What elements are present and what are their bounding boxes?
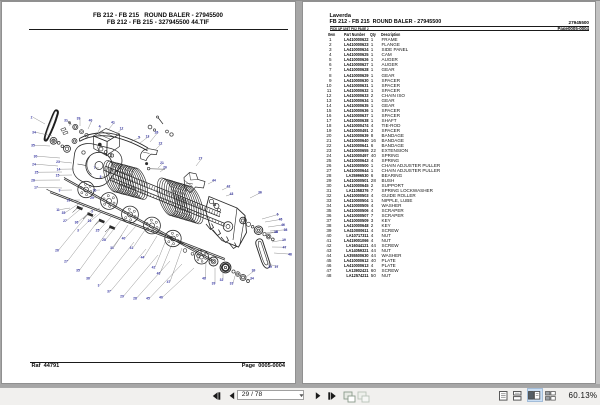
svg-text:15: 15 — [56, 174, 60, 178]
svg-text:12: 12 — [120, 127, 124, 131]
svg-text:35: 35 — [31, 144, 35, 148]
svg-text:36: 36 — [75, 221, 79, 225]
svg-text:26: 26 — [155, 131, 159, 135]
svg-text:42: 42 — [152, 266, 156, 270]
svg-text:40: 40 — [122, 237, 126, 241]
svg-text:16: 16 — [93, 189, 97, 193]
svg-text:36: 36 — [258, 191, 262, 195]
svg-text:19: 19 — [282, 238, 286, 242]
svg-text:28: 28 — [133, 297, 137, 301]
svg-text:22: 22 — [159, 142, 163, 146]
svg-text:26: 26 — [55, 249, 59, 253]
svg-text:24: 24 — [88, 219, 92, 223]
svg-text:41: 41 — [111, 121, 115, 125]
svg-text:45: 45 — [146, 297, 150, 301]
svg-text:10: 10 — [67, 199, 71, 203]
svg-text:32: 32 — [220, 278, 224, 282]
svg-text:35: 35 — [62, 211, 66, 215]
svg-text:46: 46 — [159, 296, 163, 300]
svg-text:37: 37 — [107, 290, 111, 294]
svg-text:18: 18 — [274, 230, 278, 234]
svg-text:31: 31 — [110, 246, 114, 250]
svg-text:29: 29 — [90, 196, 94, 200]
svg-text:7: 7 — [94, 166, 96, 170]
svg-text:43: 43 — [230, 192, 234, 196]
svg-text:24: 24 — [32, 163, 36, 167]
svg-text:21: 21 — [160, 161, 164, 165]
svg-text:38: 38 — [284, 228, 288, 232]
svg-text:37: 37 — [275, 265, 279, 269]
svg-text:4: 4 — [99, 125, 101, 129]
svg-text:25: 25 — [35, 171, 39, 175]
svg-text:48: 48 — [288, 253, 292, 257]
svg-text:3: 3 — [98, 284, 100, 288]
svg-text:34: 34 — [250, 277, 254, 281]
svg-text:27: 27 — [199, 157, 203, 161]
svg-text:17: 17 — [34, 186, 38, 190]
svg-text:33: 33 — [230, 282, 234, 286]
svg-text:47: 47 — [283, 246, 287, 250]
svg-text:42: 42 — [227, 185, 231, 189]
svg-text:3: 3 — [77, 229, 79, 233]
svg-text:41: 41 — [130, 246, 134, 250]
svg-text:6: 6 — [277, 213, 279, 217]
svg-text:40: 40 — [89, 119, 93, 123]
svg-text:39: 39 — [77, 117, 81, 121]
svg-text:34: 34 — [32, 131, 36, 135]
svg-text:46: 46 — [281, 223, 285, 227]
svg-text:43: 43 — [157, 272, 161, 276]
svg-text:48: 48 — [202, 277, 206, 281]
svg-text:27: 27 — [64, 260, 68, 264]
svg-text:44: 44 — [141, 256, 145, 260]
svg-text:13: 13 — [146, 135, 150, 139]
svg-text:27: 27 — [63, 219, 67, 223]
svg-text:47: 47 — [167, 280, 171, 284]
svg-text:11: 11 — [56, 208, 60, 212]
svg-text:30: 30 — [252, 269, 256, 273]
svg-text:30: 30 — [34, 155, 38, 159]
svg-text:28: 28 — [31, 179, 35, 183]
svg-text:36: 36 — [86, 277, 90, 281]
svg-text:29: 29 — [268, 265, 272, 269]
svg-text:8: 8 — [100, 175, 102, 179]
svg-text:9: 9 — [59, 189, 61, 193]
svg-text:14: 14 — [57, 168, 61, 172]
svg-text:39: 39 — [212, 282, 216, 286]
svg-text:44: 44 — [212, 179, 216, 183]
svg-text:45: 45 — [279, 218, 283, 222]
svg-text:5: 5 — [138, 136, 140, 140]
svg-text:31: 31 — [64, 119, 68, 123]
svg-text:28: 28 — [102, 238, 106, 242]
svg-text:2: 2 — [31, 116, 33, 120]
svg-text:29: 29 — [120, 295, 124, 299]
svg-text:3: 3 — [91, 210, 93, 214]
svg-text:35: 35 — [76, 269, 80, 273]
svg-text:20: 20 — [163, 166, 167, 170]
svg-text:23: 23 — [56, 160, 60, 164]
svg-text:25: 25 — [96, 229, 100, 233]
